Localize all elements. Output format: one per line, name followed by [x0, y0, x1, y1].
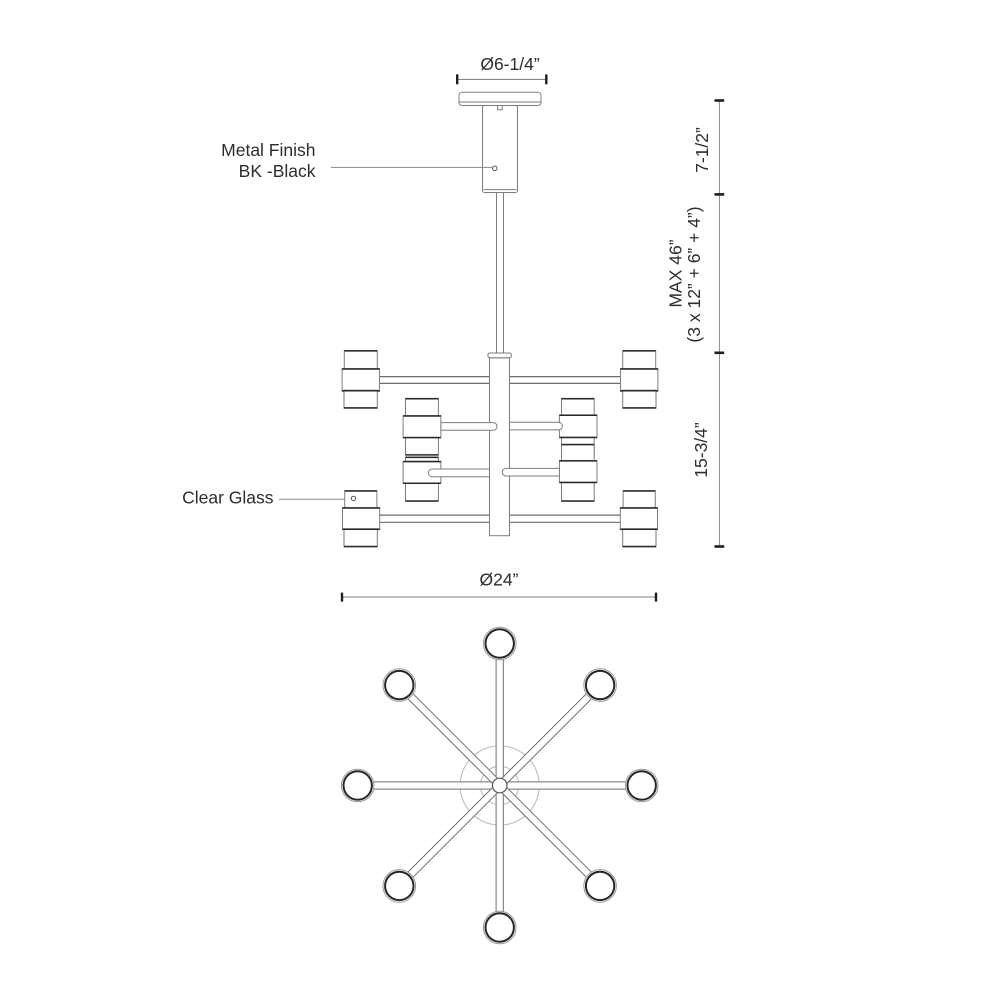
- svg-text:Clear Glass: Clear Glass: [182, 488, 274, 508]
- svg-text:Ø24”: Ø24”: [480, 570, 519, 590]
- svg-text:MAX 46”: MAX 46”: [666, 239, 686, 307]
- svg-text:Ø6-1/4”: Ø6-1/4”: [480, 54, 539, 74]
- svg-text:Metal Finish: Metal Finish: [221, 140, 315, 160]
- svg-text:7-1/2”: 7-1/2”: [692, 127, 712, 173]
- svg-text:BK -Black: BK -Black: [239, 161, 316, 181]
- svg-text:(3 x 12” + 6” + 4”): (3 x 12” + 6” + 4”): [684, 206, 704, 342]
- svg-text:15-3/4”: 15-3/4”: [691, 422, 711, 478]
